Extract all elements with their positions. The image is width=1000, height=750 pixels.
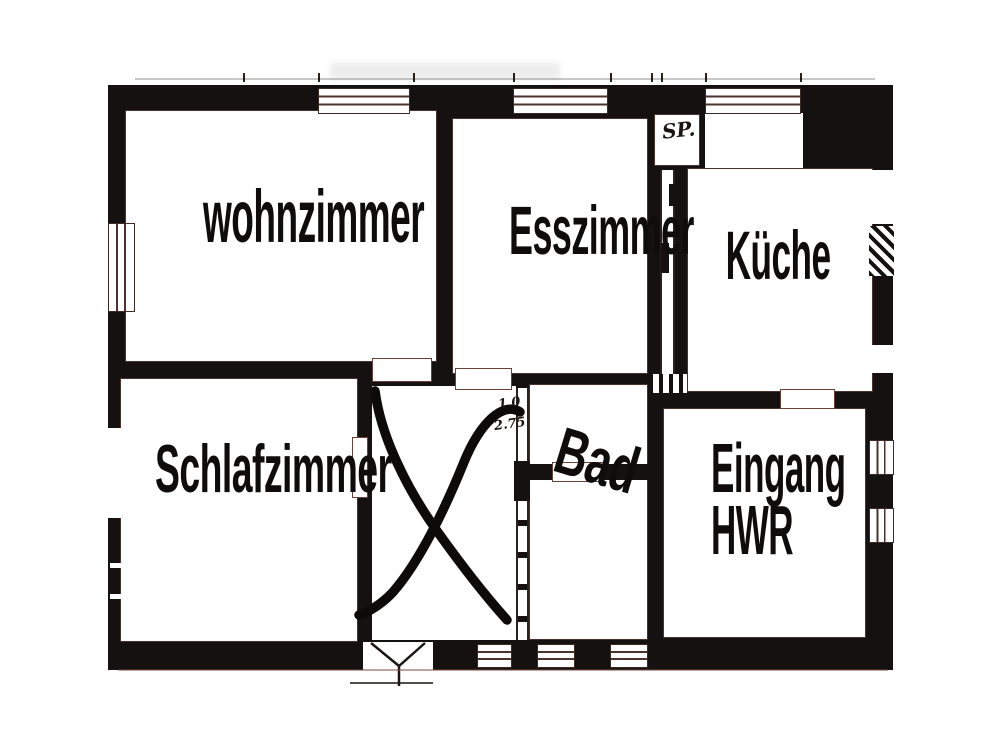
room-schlafzimmer [120, 378, 358, 642]
dimension-note: 1.0 [497, 394, 521, 412]
room-label-eingang: Eingang [711, 437, 856, 499]
scan-smudge [330, 63, 560, 79]
hatch-symbol [869, 226, 894, 276]
window-symbol [610, 644, 648, 668]
door-opening-kueche [780, 389, 835, 409]
window-symbol [513, 88, 608, 114]
window-symbol [477, 644, 512, 668]
window-opening [108, 428, 134, 518]
window-symbol [108, 223, 135, 312]
window-opening [870, 170, 894, 224]
door-swing-icon [345, 635, 440, 690]
window-symbol [537, 644, 575, 668]
window-symbol [869, 440, 894, 475]
room-label-esszimmer: Esszimmer [509, 196, 611, 265]
room-label-hwr: HWR [711, 499, 856, 561]
wall-detail [110, 594, 132, 599]
room-label-schlafzimmer: Schlafzimmer [155, 435, 299, 503]
scan-line [118, 669, 888, 671]
window-symbol [318, 88, 410, 114]
room-label-wohnzimmer: wohnzimmer [203, 180, 359, 254]
room-label-kueche: Küche [726, 221, 821, 290]
window-symbol [869, 508, 894, 543]
hatch-symbol [649, 374, 687, 393]
room-label-speisekammer: SP. [661, 116, 696, 143]
window-symbol [705, 88, 801, 114]
wall-detail [110, 563, 132, 568]
window-opening [870, 345, 894, 373]
room-label-eingang-hwr: Eingang HWR [711, 437, 856, 561]
window-recess [705, 113, 803, 169]
floor-plan: wohnzimmer Esszimmer Küche Schlafzimmer … [0, 0, 1000, 750]
